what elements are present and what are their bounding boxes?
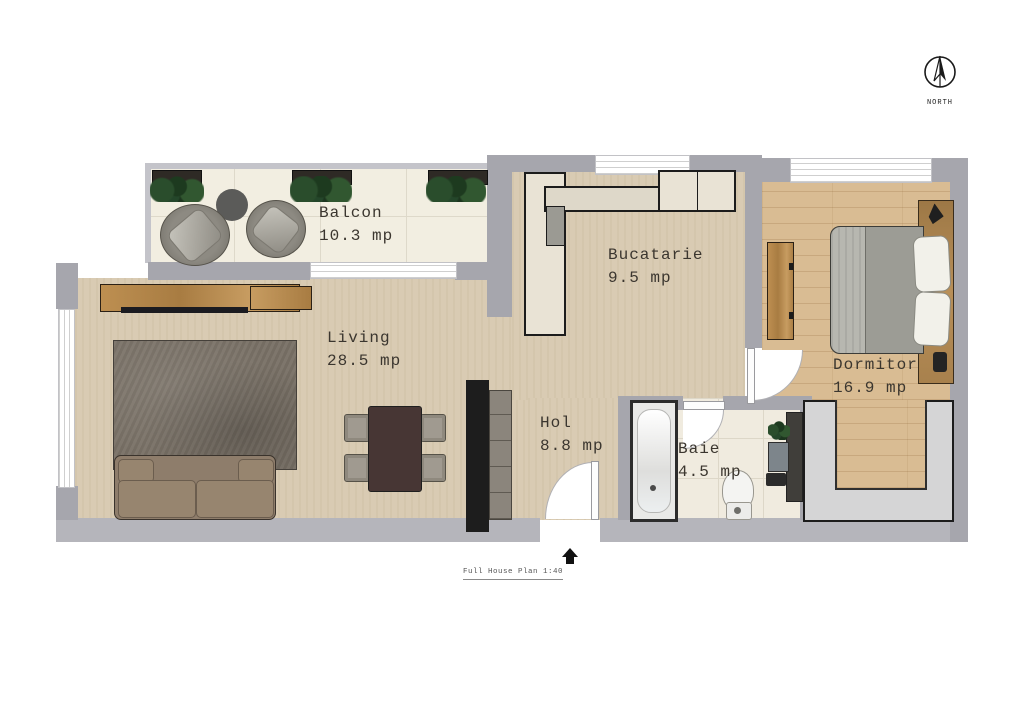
room-area-bucatarie: 9.5 mp <box>608 267 703 290</box>
wardrobe-knob-1 <box>789 263 793 270</box>
kitchen-counter-divider <box>697 172 698 210</box>
room-area-living: 28.5 mp <box>327 350 401 373</box>
room-name-balcon: Balcon <box>319 202 393 225</box>
bedroom-wardrobe <box>767 242 794 340</box>
room-label-hol: Hol 8.8 mp <box>540 412 604 458</box>
room-label-baie: Baie 4.5 mp <box>678 438 742 484</box>
bedroom-window <box>790 158 932 183</box>
bathroom-door-leaf <box>683 401 725 410</box>
balcony-chair-1 <box>160 204 230 266</box>
balcony-living-wall-left <box>148 262 310 280</box>
plan-title: Full House Plan <box>463 568 538 576</box>
living-window <box>58 309 75 488</box>
entrance-arrow-head <box>562 548 578 557</box>
title-block: Full House Plan 1:40 <box>463 568 563 580</box>
room-area-baie: 4.5 mp <box>678 461 742 484</box>
bedroom-top-wall-a <box>762 158 792 182</box>
room-name-dormitor: Dormitor <box>833 354 918 377</box>
plan-scale: 1:40 <box>543 568 563 576</box>
balcony-chair-1-cushion <box>166 206 225 264</box>
bed <box>830 226 924 354</box>
floor-plan-canvas: Balcon 10.3 mp Bucatarie 9.5 mp Living 2… <box>0 0 1018 720</box>
entrance-arrow-stem <box>566 557 574 564</box>
dining-chair-3 <box>420 414 446 442</box>
room-name-living: Living <box>327 327 401 350</box>
bathtub-basin <box>637 409 671 513</box>
room-area-dormitor: 16.9 mp <box>833 377 918 400</box>
bed-pillow-1 <box>913 235 952 293</box>
bedroom-closet-niche <box>835 400 927 490</box>
left-wall-upper <box>56 263 78 309</box>
bed-blanket-fold <box>831 227 866 353</box>
entrance-arrow-icon <box>561 548 579 566</box>
room-area-balcon: 10.3 mp <box>319 225 393 248</box>
kitchen-sink <box>546 206 565 246</box>
kitchen-left-pillar-wall <box>487 155 512 317</box>
entry-door-leaf <box>591 461 599 520</box>
bathtub <box>630 400 678 522</box>
sofa-seat-right <box>196 480 274 518</box>
kitchen-bedroom-wall <box>745 172 762 348</box>
room-label-dormitor: Dormitor 16.9 mp <box>833 354 918 400</box>
dining-table <box>368 406 422 492</box>
wardrobe-knob-2 <box>789 312 793 319</box>
kitchen-top-wall-a <box>512 155 596 172</box>
room-label-bucatarie: Bucatarie 9.5 mp <box>608 244 703 290</box>
sofa-seat-left <box>118 480 196 518</box>
nightstand-decor-icon <box>933 352 947 372</box>
sofa <box>114 455 276 520</box>
north-arrow-icon <box>920 52 960 92</box>
dining-chair-4 <box>420 454 446 482</box>
planter-plants-2-icon <box>290 176 352 202</box>
dining-chair-1 <box>344 414 370 442</box>
tv-console-step <box>250 286 312 310</box>
planter-plants-3-icon <box>426 176 486 202</box>
room-name-baie: Baie <box>678 438 742 461</box>
vanity-sink <box>768 442 789 472</box>
left-wall-lower <box>56 486 78 520</box>
bed-pillow-2 <box>913 291 952 347</box>
balcony-chair-2 <box>246 200 306 258</box>
living-rug <box>113 340 297 470</box>
vanity-plant-icon <box>768 418 790 440</box>
tall-cabinet <box>466 380 489 532</box>
vanity-tray <box>766 473 786 486</box>
room-area-hol: 8.8 mp <box>540 435 604 458</box>
balcony-sliding-door <box>310 262 457 279</box>
north-compass: NORTH <box>916 52 964 107</box>
tv-soundbar <box>121 307 248 313</box>
room-name-hol: Hol <box>540 412 604 435</box>
room-label-living: Living 28.5 mp <box>327 327 401 373</box>
shelf-unit <box>489 390 512 520</box>
balcony-living-wall-right <box>455 262 490 280</box>
north-label: NORTH <box>916 99 964 107</box>
toilet-flush-button <box>734 507 741 514</box>
bedroom-door-leaf <box>747 348 755 404</box>
bathtub-drain <box>650 485 656 491</box>
room-name-bucatarie: Bucatarie <box>608 244 703 267</box>
hall-bathroom-wall <box>618 396 630 520</box>
balcony-rail-top <box>145 163 490 169</box>
kitchen-counter-corner <box>658 170 736 212</box>
room-label-balcon: Balcon 10.3 mp <box>319 202 393 248</box>
dining-chair-2 <box>344 454 370 482</box>
planter-plants-1-icon <box>150 176 204 202</box>
balcony-chair-2-cushion <box>250 203 303 255</box>
